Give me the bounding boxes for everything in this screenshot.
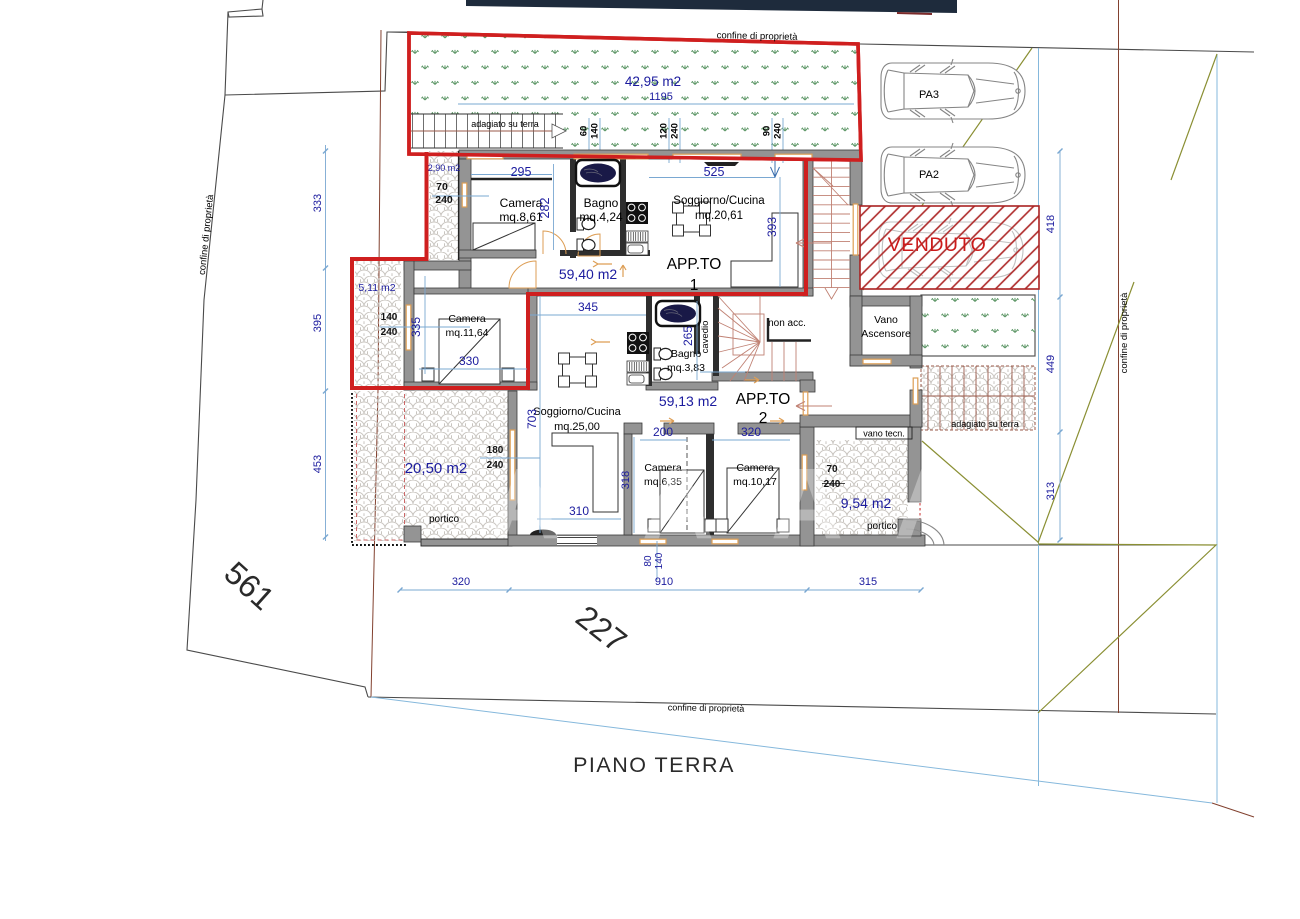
svg-text:240: 240 xyxy=(670,123,681,139)
svg-text:240: 240 xyxy=(381,327,398,338)
svg-text:59,13 m2: 59,13 m2 xyxy=(659,393,718,409)
svg-text:Vano: Vano xyxy=(874,314,898,326)
svg-text:335: 335 xyxy=(409,317,423,337)
svg-text:703: 703 xyxy=(525,409,539,429)
svg-text:Ascensore: Ascensore xyxy=(861,328,911,340)
svg-text:5,11 m2: 5,11 m2 xyxy=(358,282,395,294)
svg-text:Soggiorno/Cucina: Soggiorno/Cucina xyxy=(673,195,765,207)
svg-text:VENDUTO: VENDUTO xyxy=(888,234,987,256)
svg-text:APP.TO: APP.TO xyxy=(736,391,791,408)
svg-text:318: 318 xyxy=(620,471,632,489)
svg-text:non acc.: non acc. xyxy=(768,318,806,329)
svg-text:9,54 m2: 9,54 m2 xyxy=(841,495,892,511)
svg-text:42,95 m2: 42,95 m2 xyxy=(625,74,681,89)
svg-text:910: 910 xyxy=(655,576,673,588)
svg-text:Camera: Camera xyxy=(736,462,774,474)
svg-text:mq.4,24: mq.4,24 xyxy=(579,210,623,224)
svg-text:310: 310 xyxy=(569,504,589,518)
svg-text:Camera: Camera xyxy=(500,196,543,210)
svg-text:mq.20,61: mq.20,61 xyxy=(695,210,743,222)
svg-text:PIANO TERRA: PIANO TERRA xyxy=(573,753,735,777)
svg-text:cavedio: cavedio xyxy=(700,321,711,354)
svg-text:70: 70 xyxy=(436,181,448,193)
svg-text:59,40 m2: 59,40 m2 xyxy=(559,266,618,282)
svg-text:A: A xyxy=(771,448,843,560)
svg-text:120: 120 xyxy=(659,123,670,139)
svg-text:portico: portico xyxy=(429,514,459,525)
svg-text:418: 418 xyxy=(1045,215,1057,233)
svg-text:393: 393 xyxy=(765,217,779,237)
svg-text:395: 395 xyxy=(312,314,324,332)
svg-text:200: 200 xyxy=(653,425,673,439)
svg-text:PA3: PA3 xyxy=(919,89,939,101)
svg-text:330: 330 xyxy=(459,354,479,368)
svg-text:portico: portico xyxy=(867,521,897,532)
svg-text:confine di proprietà: confine di proprietà xyxy=(668,702,745,713)
svg-text:295: 295 xyxy=(511,165,532,179)
svg-text:Bagno: Bagno xyxy=(584,196,619,210)
svg-text:adagiato su terra: adagiato su terra xyxy=(951,419,1019,429)
svg-text:A: A xyxy=(489,448,561,560)
svg-text:525: 525 xyxy=(704,165,725,179)
svg-text:Soggiorno/Cucina: Soggiorno/Cucina xyxy=(533,406,621,418)
svg-text:333: 333 xyxy=(312,194,324,212)
svg-text:20,50 m2: 20,50 m2 xyxy=(405,460,468,477)
svg-text:confine di proprietà: confine di proprietà xyxy=(1119,292,1130,374)
svg-text:453: 453 xyxy=(312,455,324,473)
svg-text:1: 1 xyxy=(690,277,699,294)
svg-text:320: 320 xyxy=(741,425,761,439)
svg-text:345: 345 xyxy=(578,300,598,314)
svg-text:240: 240 xyxy=(773,123,784,139)
svg-text:mq.11,64: mq.11,64 xyxy=(446,327,489,339)
svg-text:313: 313 xyxy=(1045,482,1057,500)
svg-text:315: 315 xyxy=(859,576,877,588)
svg-text:vano tecn.: vano tecn. xyxy=(863,429,905,439)
svg-text:282: 282 xyxy=(538,198,552,219)
svg-text:mq.25,00: mq.25,00 xyxy=(554,421,600,433)
svg-text:140: 140 xyxy=(381,312,398,323)
svg-text:A: A xyxy=(642,448,714,560)
svg-text:140: 140 xyxy=(590,123,601,139)
svg-text:PA2: PA2 xyxy=(919,169,939,181)
svg-text:90: 90 xyxy=(762,126,773,137)
svg-text:320: 320 xyxy=(452,576,470,588)
svg-text:240: 240 xyxy=(435,194,453,206)
svg-text:A: A xyxy=(894,448,966,560)
svg-text:confine di proprietà: confine di proprietà xyxy=(717,30,799,43)
svg-text:mq.8,61: mq.8,61 xyxy=(499,210,543,224)
svg-text:mq.3,83: mq.3,83 xyxy=(667,362,705,374)
svg-text:449: 449 xyxy=(1045,355,1057,373)
svg-text:60: 60 xyxy=(579,126,590,137)
svg-text:2,90 m2: 2,90 m2 xyxy=(428,163,461,173)
svg-text:Camera: Camera xyxy=(448,313,486,325)
svg-text:265: 265 xyxy=(681,326,695,346)
svg-text:APP.TO: APP.TO xyxy=(667,256,722,273)
svg-text:1195: 1195 xyxy=(649,91,673,103)
svg-text:adagiato su terra: adagiato su terra xyxy=(471,119,539,129)
